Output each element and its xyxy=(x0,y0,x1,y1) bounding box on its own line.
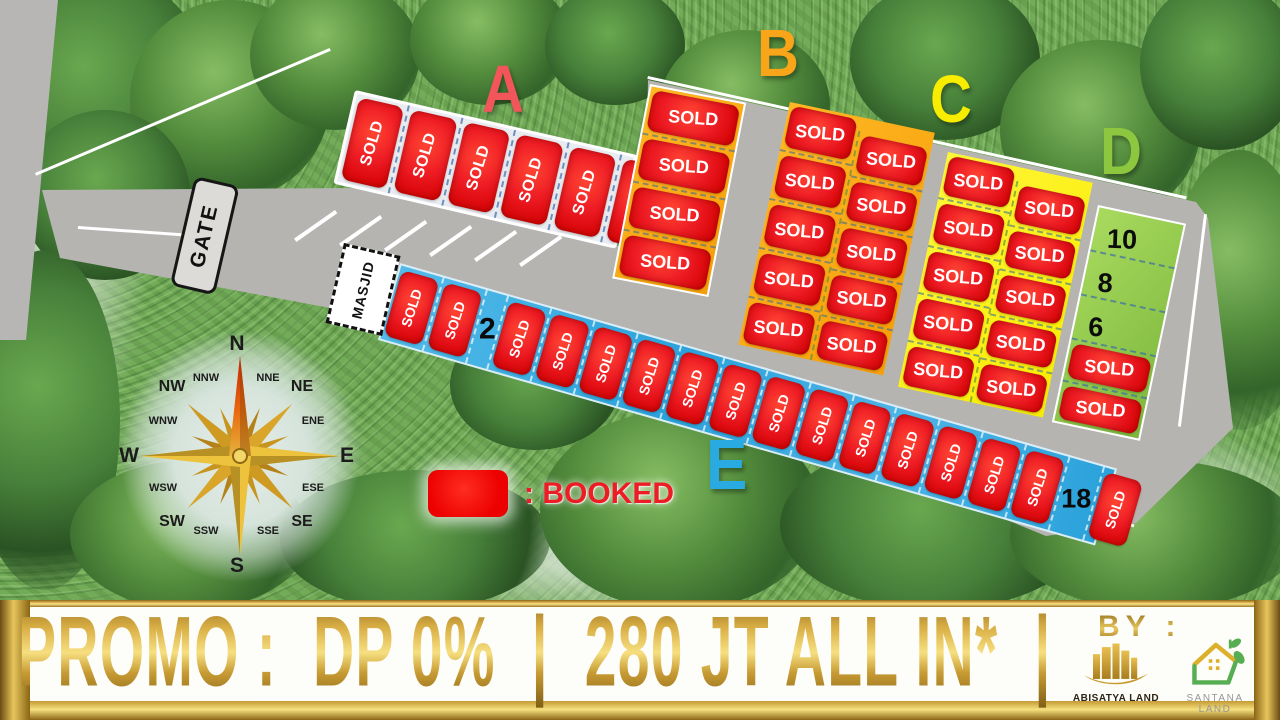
compass-label: SSW xyxy=(193,525,218,537)
promo-separator: | xyxy=(532,595,549,708)
promo-separator: | xyxy=(1034,595,1051,708)
compass-label: WSW xyxy=(149,482,177,494)
compass-label: ENE xyxy=(302,415,325,427)
siteplan-poster: SOLD SOLD SOLD SOLD SOLD SOLD SOLD SOLD … xyxy=(0,0,1280,720)
compass-label: NNE xyxy=(256,372,279,384)
by-label: BY : xyxy=(1098,610,1181,644)
compass-label: NNW xyxy=(193,372,219,384)
promo-text: PROMO : DP 0% | 280 JT ALL IN* | xyxy=(18,604,1047,700)
promo-price: 280 JT ALL IN* xyxy=(585,595,999,708)
compass-label: ESE xyxy=(302,482,324,494)
compass-label: E xyxy=(340,444,354,468)
compass-label: S xyxy=(230,554,244,578)
compass-label: W xyxy=(119,444,139,468)
compass-label: NE xyxy=(291,378,313,396)
promo-dp: DP 0% xyxy=(313,595,496,708)
compass-label: WNW xyxy=(149,415,178,427)
compass-rose: N NNE NE ENE E ESE SE SSE S SSW SW WSW W… xyxy=(120,330,360,582)
block-a-label: A xyxy=(482,51,524,128)
abisatya-land-label: ABISATYA LAND xyxy=(1066,693,1166,704)
promo-banner: PROMO : DP 0% | 280 JT ALL IN* | BY : xyxy=(0,600,1280,720)
santana-land-logo: SANTANA LAND xyxy=(1170,636,1260,715)
santana-house-icon xyxy=(1183,636,1247,686)
abisatya-land-logo: ABISATYA LAND xyxy=(1066,640,1166,704)
block-d-label: D xyxy=(1100,113,1142,190)
compass-label: SW xyxy=(159,513,185,531)
compass-label: SSE xyxy=(257,525,279,537)
booked-label: : BOOKED xyxy=(524,477,674,511)
booked-swatch-icon xyxy=(428,470,508,517)
compass-label: N xyxy=(229,332,244,356)
compass-star-icon xyxy=(120,336,360,576)
block-b-label: B xyxy=(757,15,799,92)
compass-label: NW xyxy=(159,378,186,396)
promo-label: PROMO : xyxy=(18,595,277,708)
block-e-label: E xyxy=(706,425,747,507)
legend: : BOOKED xyxy=(428,470,674,517)
santana-land-label: SANTANA LAND xyxy=(1170,693,1260,715)
block-c-label: C xyxy=(930,61,972,138)
compass-label: SE xyxy=(291,513,312,531)
abisatya-buildings-icon xyxy=(1080,640,1152,686)
siteplan-map: SOLD SOLD SOLD SOLD SOLD SOLD SOLD SOLD … xyxy=(0,0,1280,602)
